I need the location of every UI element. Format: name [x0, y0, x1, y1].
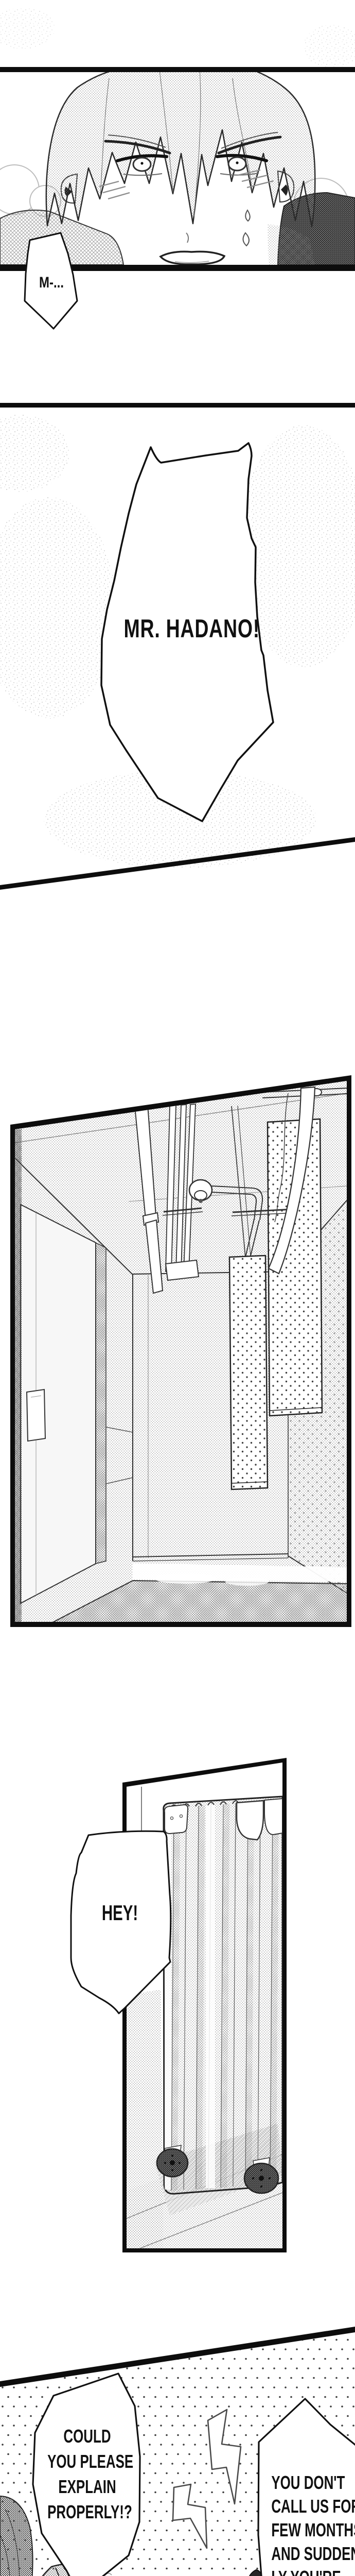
panel-2 [0, 403, 355, 890]
door-handle [27, 1389, 45, 1441]
suitcase [157, 1797, 282, 2194]
front-door [21, 1205, 106, 1603]
dotted-banner-center [229, 1256, 268, 1489]
dialogue-back-text: YOU DON'T CALL US FOR FEW MONTHS AND SUD… [271, 2471, 341, 2576]
dialogue-hey-text: HEY! [98, 1900, 141, 1926]
margin-speckle [0, 8, 355, 68]
dialogue-hadano-text: MR. HADANO! [124, 613, 240, 644]
panel-3 [10, 1075, 351, 1627]
manga-page: M-... MR. HADANO! HEY! COULD YOU PLEASE … [0, 0, 355, 2576]
panel-4 [71, 1758, 287, 2252]
dialogue-explain-text: COULD YOU PLEASE EXPLAIN PROPERLY!? [47, 2424, 127, 2524]
dialogue-m-text: M-... [33, 274, 70, 292]
manga-artwork [0, 0, 355, 2576]
